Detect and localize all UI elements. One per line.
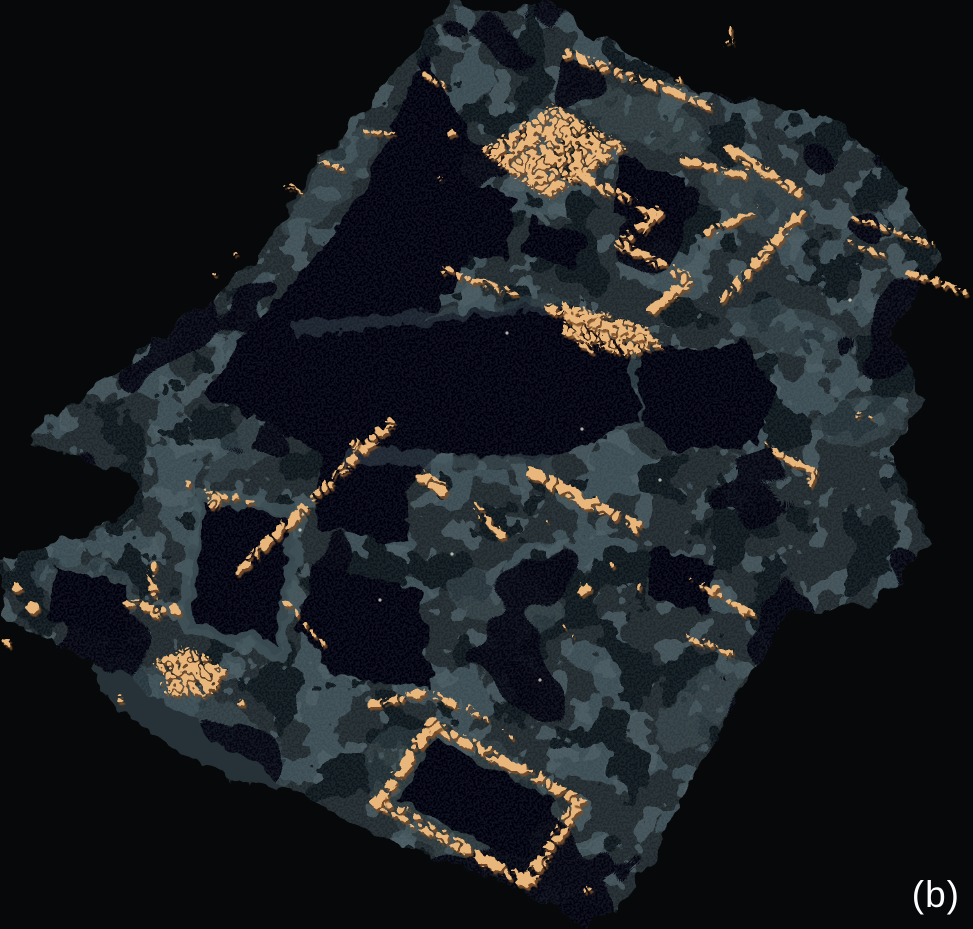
wall-segment xyxy=(728,25,729,39)
wall-fragment-dot xyxy=(212,270,216,274)
wall-fragment-dot xyxy=(855,411,859,415)
wall-fragment-dot xyxy=(422,714,438,730)
figure-panel: (b) xyxy=(0,0,973,929)
wall-fragment-dot xyxy=(347,436,357,446)
wall-fragment-dot xyxy=(369,792,385,808)
wall-fragment-dot xyxy=(543,518,547,522)
wall-fragment-dot xyxy=(183,478,189,484)
wall-fragment-dot xyxy=(24,600,36,612)
figure-label: (b) xyxy=(912,874,960,916)
wall-fragment-dot xyxy=(891,226,895,230)
bright-speck xyxy=(538,678,541,681)
wall-fragment-dot xyxy=(722,39,728,45)
wall-fragment-dot xyxy=(577,581,589,593)
wall-fragment-dot xyxy=(634,582,640,588)
wall-fragment-dot xyxy=(561,621,565,625)
wall-fragment-dot xyxy=(9,580,19,590)
wall-fragment-dot xyxy=(607,559,613,565)
wall-fragment-dot xyxy=(206,494,218,506)
wall-fragment-dot xyxy=(518,873,532,887)
wall-fragment-dot xyxy=(583,884,589,890)
wall-fragment-dot xyxy=(915,236,919,240)
wall-fragment-dot xyxy=(447,127,453,133)
wall-fragment-dot xyxy=(2,636,10,644)
bright-speck xyxy=(378,598,381,601)
bright-speck xyxy=(505,331,508,334)
wall-segment xyxy=(677,76,679,86)
wall-fragment-dot xyxy=(498,726,502,730)
wall-fragment-dot xyxy=(866,414,870,418)
terrain-ridge xyxy=(350,456,545,465)
wall-fragment-dot xyxy=(115,694,121,700)
bright-speck xyxy=(658,478,661,481)
wall-fragment-dot xyxy=(734,601,746,613)
bright-speck xyxy=(848,298,851,301)
wall-fragment-dot xyxy=(709,582,717,590)
wall-fragment-dot xyxy=(481,716,485,720)
wall-fragment-dot xyxy=(237,697,243,703)
wall-fragment-dot xyxy=(434,173,440,179)
wall-fragment-dot xyxy=(507,732,511,736)
bright-speck xyxy=(298,528,301,531)
bright-speck xyxy=(450,552,453,555)
wall-fragment-dot xyxy=(570,791,584,805)
wall-fragment-dot xyxy=(569,632,573,636)
bright-speck xyxy=(580,427,583,430)
site-3d-render xyxy=(0,0,973,929)
wall-fragment-dot xyxy=(230,249,236,255)
